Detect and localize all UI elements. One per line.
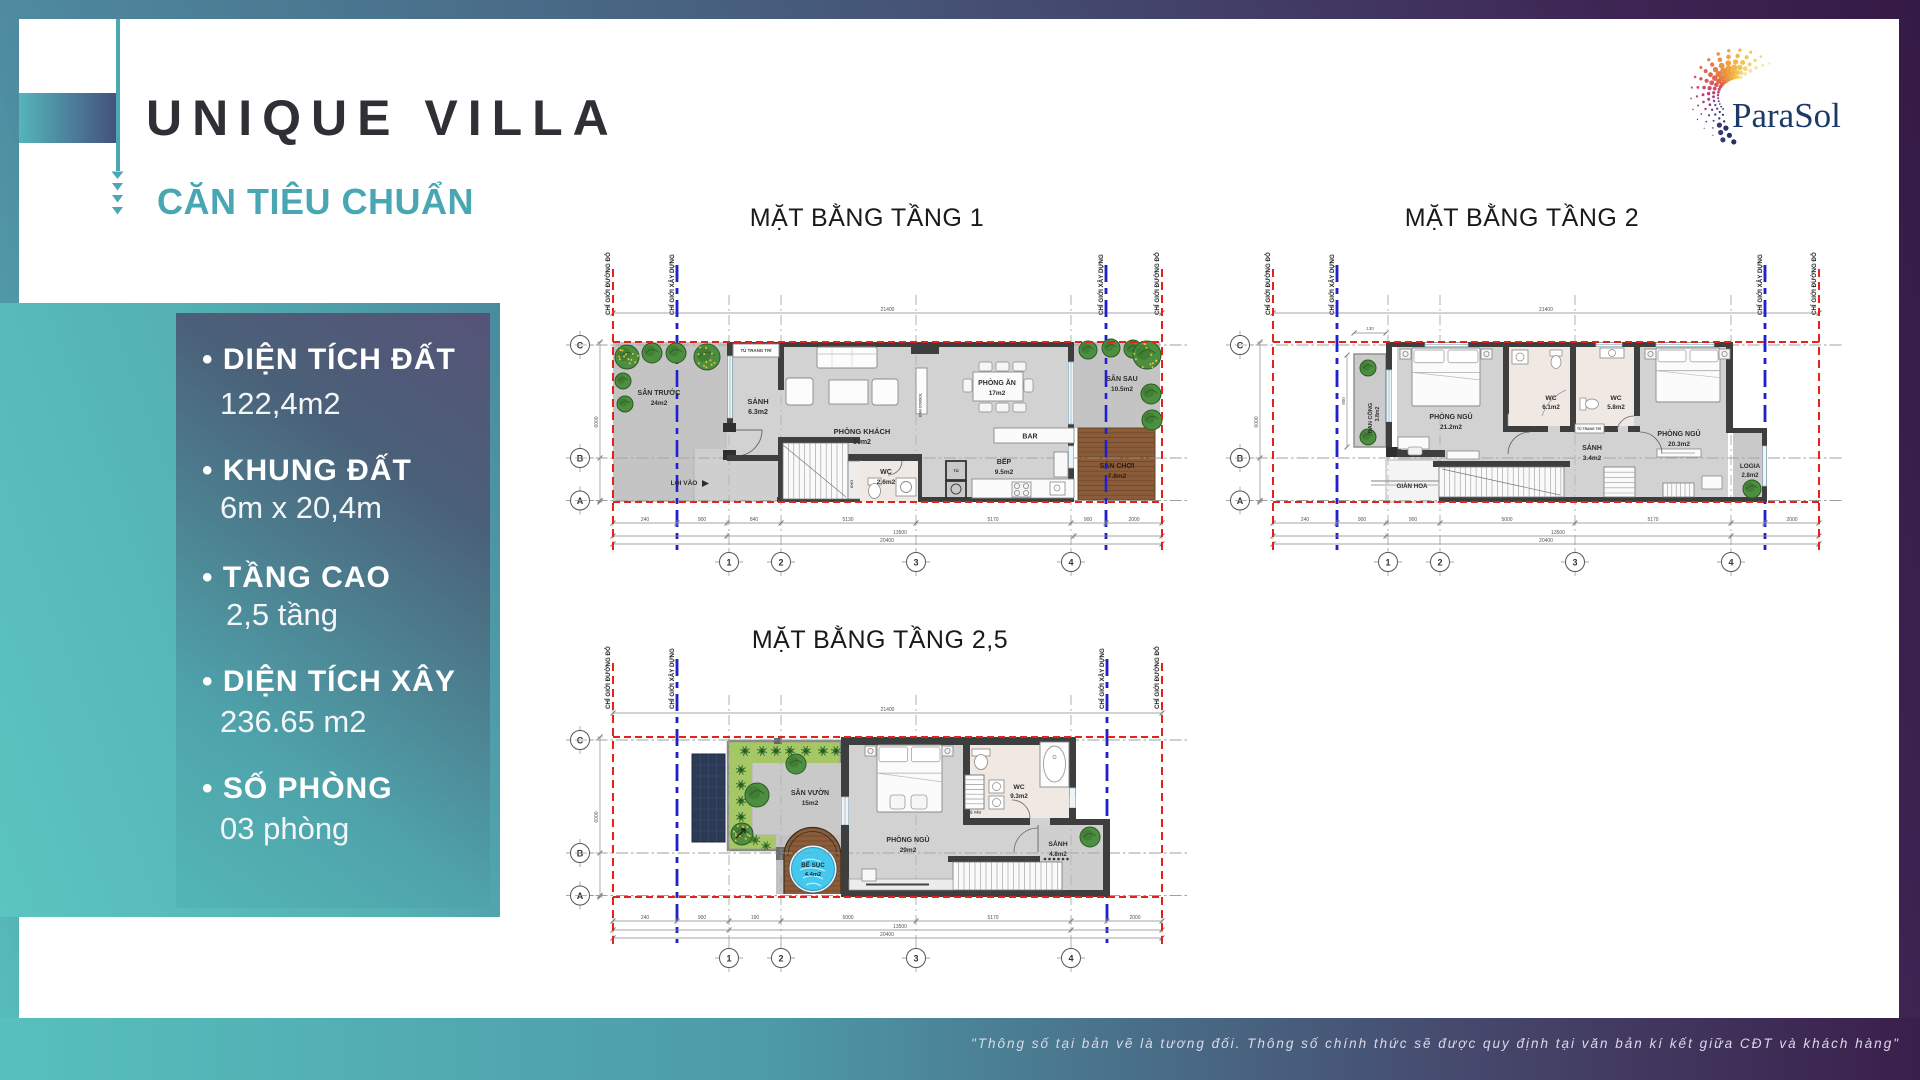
svg-text:B: B [577, 849, 584, 859]
svg-text:2000: 2000 [1128, 517, 1139, 523]
svg-text:6000: 6000 [594, 416, 600, 427]
svg-text:CHỈ GIỚI XÂY DỰNG: CHỈ GIỚI XÂY DỰNG [1097, 254, 1105, 315]
svg-text:190: 190 [751, 915, 760, 921]
svg-text:CHỈ GIỚI XÂY DỰNG: CHỈ GIỚI XÂY DỰNG [1328, 254, 1336, 315]
svg-text:PHÒNG NGỦ: PHÒNG NGỦ [886, 835, 929, 844]
svg-text:BAR: BAR [1022, 434, 1037, 441]
svg-text:5170: 5170 [987, 517, 998, 523]
svg-text:13500: 13500 [1551, 530, 1565, 536]
svg-text:GIÀN HOA: GIÀN HOA [1397, 483, 1428, 490]
svg-text:CHỈ GIỚI XÂY DỰNG: CHỈ GIỚI XÂY DỰNG [1098, 648, 1106, 709]
svg-text:KỆ VẬU: KỆ VẬU [968, 810, 982, 815]
svg-text:900: 900 [1409, 517, 1418, 523]
svg-text:B: B [577, 454, 584, 464]
svg-text:17m2: 17m2 [989, 390, 1006, 397]
svg-text:CHỈ GIỚI ĐƯỜNG ĐỎ: CHỈ GIỚI ĐƯỜNG ĐỎ [1153, 646, 1161, 709]
svg-text:3.4m2: 3.4m2 [1583, 455, 1602, 462]
svg-text:WC: WC [1545, 395, 1556, 402]
svg-text:15m2: 15m2 [802, 800, 819, 807]
svg-text:1: 1 [726, 954, 731, 964]
svg-text:6000: 6000 [594, 811, 600, 822]
svg-text:SẢNH: SẢNH [747, 397, 768, 406]
svg-text:5130: 5130 [842, 517, 853, 523]
svg-text:900: 900 [1084, 517, 1093, 523]
svg-text:1: 1 [1385, 558, 1390, 568]
svg-text:21400: 21400 [1539, 307, 1553, 313]
svg-text:20.3m2: 20.3m2 [1668, 441, 1690, 448]
svg-text:WC: WC [1013, 784, 1024, 791]
svg-text:6.3m2: 6.3m2 [748, 409, 768, 416]
svg-text:5.8m2: 5.8m2 [1607, 404, 1625, 411]
svg-text:3.8m2: 3.8m2 [1375, 407, 1381, 422]
svg-text:21400: 21400 [881, 307, 895, 313]
svg-text:840: 840 [750, 517, 759, 523]
svg-text:21.2m2: 21.2m2 [1440, 424, 1462, 431]
svg-text:1: 1 [726, 558, 731, 568]
svg-text:SẢNH: SẢNH [1582, 443, 1602, 452]
svg-text:900: 900 [1358, 517, 1367, 523]
svg-text:2: 2 [1437, 558, 1442, 568]
svg-text:13500: 13500 [893, 924, 907, 930]
svg-text:29m2: 29m2 [900, 847, 917, 854]
svg-text:A: A [1237, 496, 1244, 506]
svg-text:20400: 20400 [1539, 538, 1553, 544]
svg-text:24m2: 24m2 [651, 400, 668, 407]
svg-text:A: A [577, 496, 584, 506]
svg-text:CHỈ GIỚI XÂY DỰNG: CHỈ GIỚI XÂY DỰNG [1756, 254, 1764, 315]
svg-text:20400: 20400 [880, 538, 894, 544]
svg-text:PHÒNG NGỦ: PHÒNG NGỦ [1429, 412, 1472, 421]
svg-text:PHÒNG KHÁCH: PHÒNG KHÁCH [834, 427, 891, 436]
svg-text:TỦ TRANG TRÍ: TỦ TRANG TRÍ [741, 348, 773, 353]
svg-text:WC: WC [1610, 395, 1621, 402]
svg-text:900: 900 [698, 517, 707, 523]
svg-text:A: A [577, 891, 584, 901]
svg-text:BAN CÔNG: BAN CÔNG [1366, 403, 1374, 433]
svg-text:CHỈ GIỚI ĐƯỜNG ĐỎ: CHỈ GIỚI ĐƯỜNG ĐỎ [1153, 252, 1161, 315]
svg-text:ĐÀN CONSOL: ĐÀN CONSOL [918, 392, 923, 417]
svg-text:5000: 5000 [1501, 517, 1512, 523]
svg-text:C: C [577, 736, 584, 746]
svg-text:CHỈ GIỚI ĐƯỜNG ĐỎ: CHỈ GIỚI ĐƯỜNG ĐỎ [604, 252, 612, 315]
svg-text:SÂN SAU: SÂN SAU [1106, 374, 1138, 383]
svg-text:2000: 2000 [1129, 915, 1140, 921]
svg-text:3: 3 [1572, 558, 1577, 568]
svg-text:C: C [577, 341, 584, 351]
svg-text:5170: 5170 [1647, 517, 1658, 523]
svg-text:6000: 6000 [1254, 416, 1260, 427]
svg-text:5000: 5000 [842, 915, 853, 921]
svg-text:CHỈ GIỚI ĐƯỜNG ĐỎ: CHỈ GIỚI ĐƯỜNG ĐỎ [604, 646, 612, 709]
svg-text:3: 3 [913, 954, 918, 964]
svg-text:PHÒNG NGỦ: PHÒNG NGỦ [1657, 429, 1700, 438]
svg-text:PHÒNG ĂN: PHÒNG ĂN [978, 378, 1016, 387]
svg-text:5170: 5170 [987, 915, 998, 921]
svg-text:CHỈ GIỚI XÂY DỰNG: CHỈ GIỚI XÂY DỰNG [668, 254, 676, 315]
svg-text:10.5m2: 10.5m2 [1111, 386, 1133, 393]
svg-text:LOGIA: LOGIA [1740, 463, 1761, 470]
svg-text:9.3m2: 9.3m2 [1010, 793, 1028, 800]
svg-text:7.8m2: 7.8m2 [1108, 473, 1127, 480]
svg-text:2: 2 [778, 954, 783, 964]
svg-text:4.4m2: 4.4m2 [805, 872, 821, 878]
svg-text:TỦ TRANG TRÍ: TỦ TRANG TRÍ [1577, 426, 1602, 431]
svg-text:WC: WC [880, 469, 892, 476]
svg-text:21400: 21400 [881, 707, 895, 713]
svg-text:20400: 20400 [880, 932, 894, 938]
svg-text:4: 4 [1068, 558, 1073, 568]
svg-text:CHỈ GIỚI ĐƯỜNG ĐỎ: CHỈ GIỚI ĐƯỜNG ĐỎ [1810, 252, 1818, 315]
svg-text:BỂ SỤC: BỂ SỤC [801, 862, 825, 869]
svg-text:4: 4 [1068, 954, 1073, 964]
svg-text:3: 3 [913, 558, 918, 568]
svg-text:800: 800 [1341, 397, 1346, 405]
svg-text:SẢNH: SẢNH [1048, 839, 1067, 848]
svg-text:C: C [1237, 341, 1244, 351]
svg-text:2000: 2000 [1786, 517, 1797, 523]
svg-text:SÂN VƯỜN: SÂN VƯỜN [791, 788, 829, 797]
svg-text:240: 240 [641, 915, 650, 921]
svg-text:9.5m2: 9.5m2 [995, 469, 1014, 476]
svg-text:TỦ: TỦ [953, 468, 958, 473]
svg-text:CHỈ GIỚI ĐƯỜNG ĐỎ: CHỈ GIỚI ĐƯỜNG ĐỎ [1264, 252, 1272, 315]
svg-text:30m2: 30m2 [853, 439, 871, 446]
svg-text:240: 240 [641, 517, 650, 523]
svg-text:CHỈ GIỚI XÂY DỰNG: CHỈ GIỚI XÂY DỰNG [668, 648, 676, 709]
svg-text:2.6m2: 2.6m2 [877, 479, 896, 486]
svg-text:4: 4 [1728, 558, 1733, 568]
svg-text:240: 240 [1301, 517, 1310, 523]
svg-text:2.8m2: 2.8m2 [1741, 473, 1759, 479]
svg-text:4.8m2: 4.8m2 [1049, 851, 1067, 858]
svg-text:SÂN TRƯỚC: SÂN TRƯỚC [638, 388, 681, 397]
svg-text:130: 130 [1366, 326, 1374, 331]
svg-text:13500: 13500 [893, 530, 907, 536]
svg-text:2: 2 [778, 558, 783, 568]
svg-text:B: B [1237, 454, 1244, 464]
svg-text:KHO: KHO [850, 480, 854, 488]
svg-text:900: 900 [698, 915, 707, 921]
svg-text:6.1m2: 6.1m2 [1542, 404, 1560, 411]
